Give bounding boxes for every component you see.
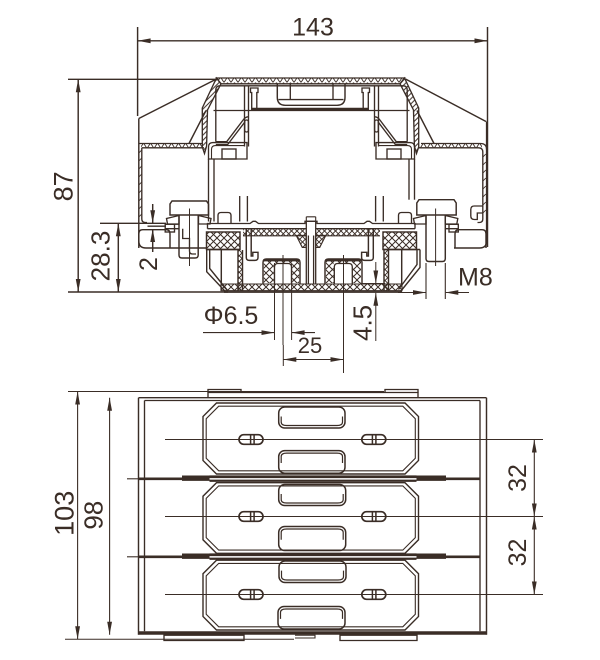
svg-text:4.5: 4.5 <box>348 305 378 341</box>
svg-text:28.3: 28.3 <box>86 231 116 282</box>
svg-text:2: 2 <box>135 257 163 271</box>
svg-text:32: 32 <box>504 464 532 492</box>
svg-text:Φ6.5: Φ6.5 <box>204 302 259 330</box>
svg-text:M8: M8 <box>458 264 493 292</box>
svg-text:98: 98 <box>79 501 109 530</box>
svg-text:103: 103 <box>50 491 80 536</box>
svg-text:143: 143 <box>292 14 334 42</box>
svg-text:32: 32 <box>504 539 532 567</box>
svg-text:87: 87 <box>49 171 79 201</box>
svg-text:25: 25 <box>298 333 322 358</box>
